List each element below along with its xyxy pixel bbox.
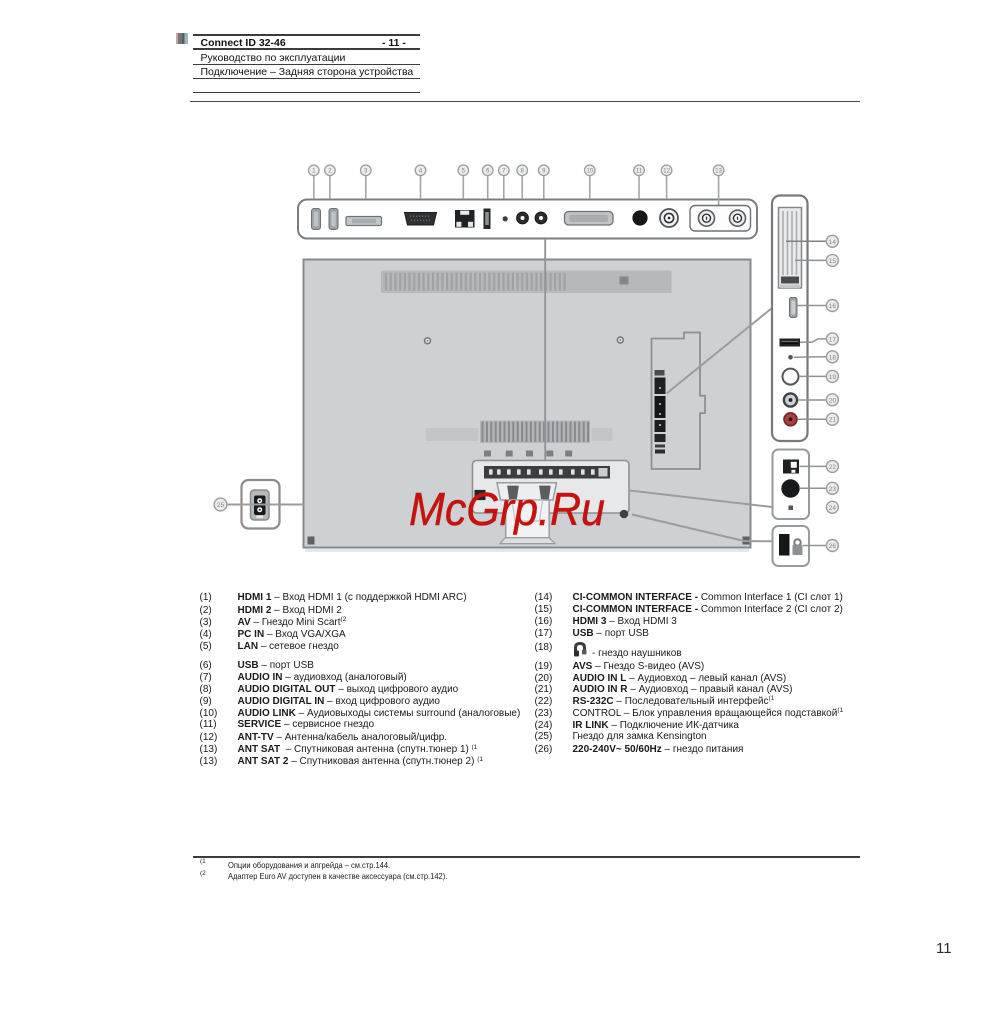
svg-text:11: 11 [636, 169, 643, 175]
svg-text:14: 14 [829, 239, 837, 246]
svg-text:23: 23 [829, 486, 837, 493]
svg-text:18: 18 [829, 354, 837, 361]
svg-text:13: 13 [715, 169, 722, 175]
svg-text:20: 20 [829, 397, 837, 404]
svg-text:17: 17 [829, 336, 837, 343]
svg-text:15: 15 [829, 258, 837, 265]
svg-text:25: 25 [217, 502, 225, 509]
svg-text:19: 19 [829, 374, 837, 381]
svg-text:21: 21 [829, 417, 837, 424]
svg-text:26: 26 [829, 543, 837, 550]
svg-text:16: 16 [829, 303, 837, 310]
svg-text:22: 22 [829, 464, 837, 471]
svg-text:24: 24 [829, 505, 837, 512]
svg-text:12: 12 [663, 169, 670, 175]
svg-text:10: 10 [586, 169, 593, 175]
